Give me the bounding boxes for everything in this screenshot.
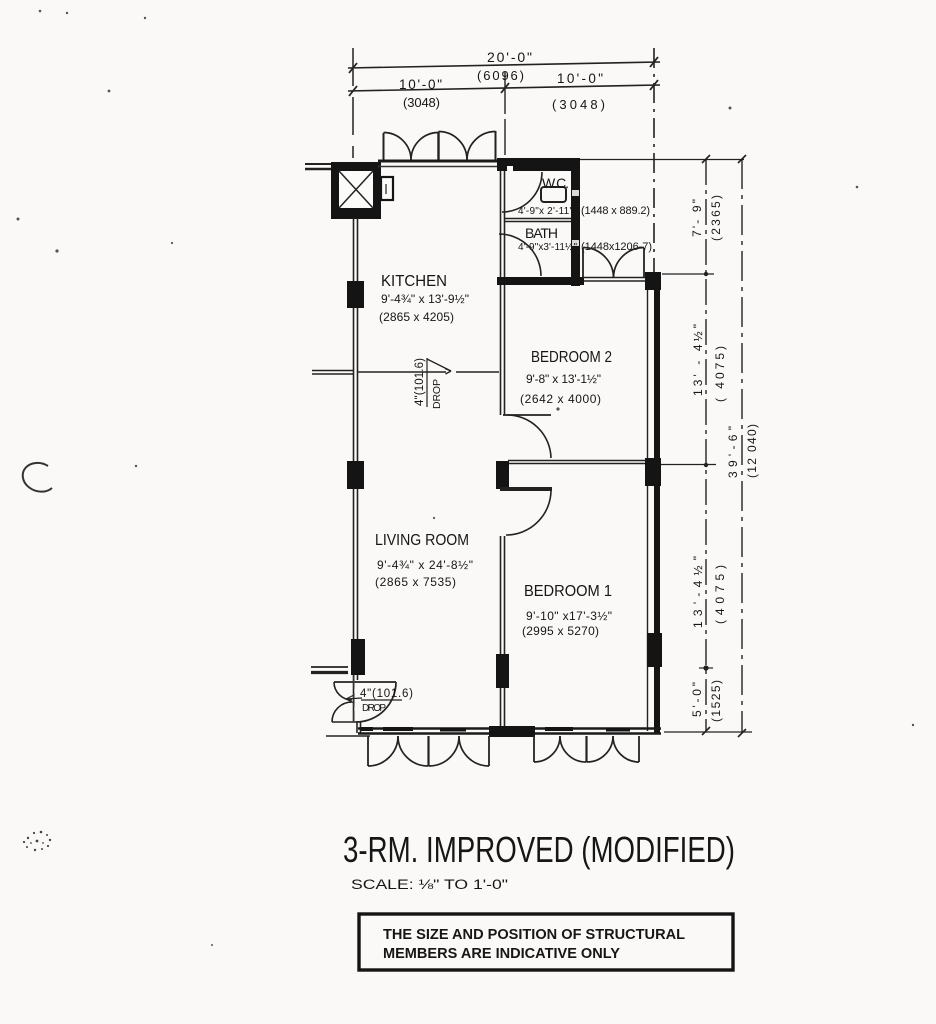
svg-text:SCALE: ⅛" TO 1'-0": SCALE: ⅛" TO 1'-0" — [351, 877, 508, 892]
svg-text:(1448 x 889.2): (1448 x 889.2) — [581, 205, 650, 217]
svg-text:DROP: DROP — [362, 703, 386, 714]
svg-text:W.C.: W.C. — [542, 175, 570, 191]
svg-text:(6096): (6096) — [477, 68, 524, 83]
svg-text:(12 040): (12 040) — [745, 424, 759, 478]
svg-text:3-RM. IMPROVED (MODIFIED): 3-RM. IMPROVED (MODIFIED) — [343, 829, 735, 870]
svg-text:9'-4¾" x 24'-8½": 9'-4¾" x 24'-8½" — [377, 558, 473, 572]
svg-text:9'-8" x 13'-1½": 9'-8" x 13'-1½" — [526, 372, 601, 386]
svg-text:(2865 x 7535): (2865 x 7535) — [375, 575, 456, 589]
svg-text:THE SIZE AND POSITION OF STRUC: THE SIZE AND POSITION OF STRUCTURAL — [383, 927, 685, 943]
svg-text:(1525): (1525) — [709, 680, 723, 722]
svg-text:LIVING ROOM: LIVING ROOM — [375, 532, 469, 549]
svg-text:DROP: DROP — [431, 379, 443, 409]
svg-text:4"(101.6): 4"(101.6) — [360, 688, 413, 700]
svg-text:(2865 x 4205): (2865 x 4205) — [379, 310, 454, 324]
svg-text:4"(101.6): 4"(101.6) — [414, 358, 426, 406]
svg-text:MEMBERS ARE INDICATIVE ONLY: MEMBERS ARE INDICATIVE ONLY — [383, 946, 620, 962]
svg-text:KITCHEN: KITCHEN — [381, 273, 447, 290]
svg-text:(2642 x 4000): (2642 x 4000) — [520, 392, 601, 406]
svg-text:9'-4¾" x 13'-9½": 9'-4¾" x 13'-9½" — [381, 292, 469, 306]
svg-text:(2995 x 5270): (2995 x 5270) — [522, 624, 599, 638]
svg-text:( 4075): ( 4075) — [713, 346, 727, 402]
svg-text:5'-0": 5'-0" — [690, 682, 704, 717]
svg-text:9'-10" x17'-3½": 9'-10" x17'-3½" — [526, 609, 612, 623]
svg-text:BEDROOM 2: BEDROOM 2 — [531, 349, 612, 366]
svg-text:4'-9"x 2'-11": 4'-9"x 2'-11" — [518, 206, 573, 217]
svg-text:BATH: BATH — [525, 225, 559, 241]
svg-text:BEDROOM 1: BEDROOM 1 — [524, 583, 612, 600]
svg-text:(3048): (3048) — [403, 95, 440, 110]
